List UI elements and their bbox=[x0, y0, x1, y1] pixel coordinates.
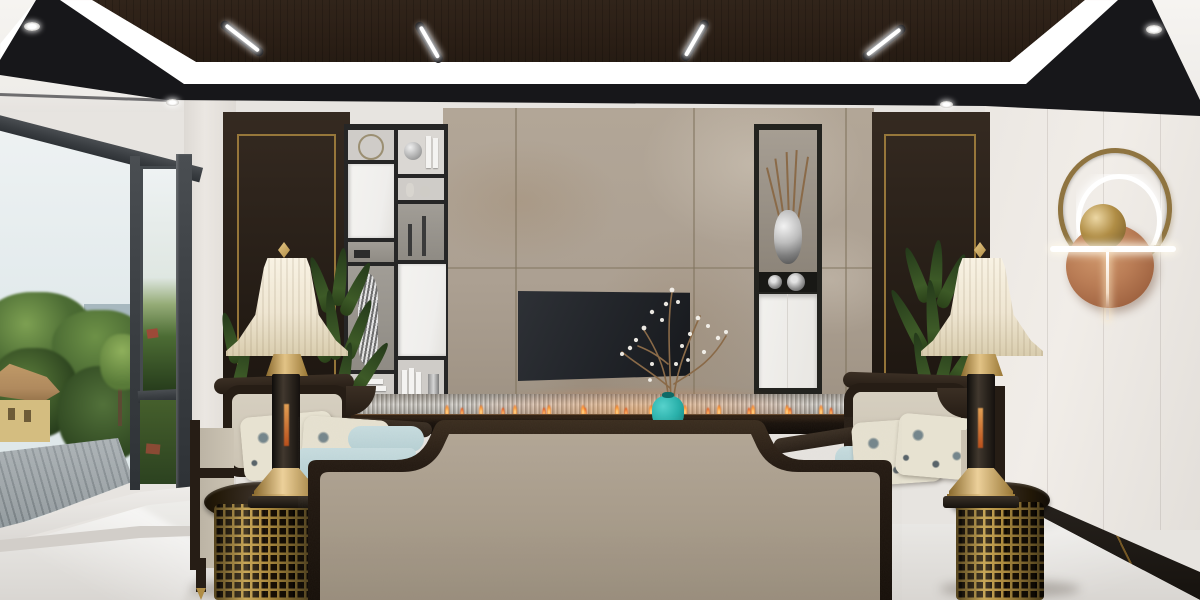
red-roof-bit bbox=[146, 443, 161, 454]
panel-seam bbox=[515, 108, 517, 420]
light-bar bbox=[1050, 246, 1176, 252]
dried-reed bbox=[797, 157, 809, 221]
light-line bbox=[1106, 252, 1109, 320]
red-roof-bit bbox=[146, 328, 158, 338]
living-room-render bbox=[0, 0, 1200, 600]
lamp-shade bbox=[921, 258, 1043, 356]
shelf-compartment bbox=[398, 130, 444, 174]
ring-wall-sconce bbox=[1050, 140, 1180, 330]
floor-to-ceiling-window bbox=[0, 96, 196, 566]
lamp-finial bbox=[278, 242, 290, 258]
window-glass bbox=[0, 96, 140, 536]
silver-ornament bbox=[404, 142, 422, 160]
rosette-sphere bbox=[768, 275, 782, 289]
books bbox=[426, 136, 431, 168]
display-niche bbox=[754, 124, 822, 402]
lamp-column bbox=[967, 374, 995, 470]
house-window bbox=[24, 410, 31, 422]
niche-back bbox=[759, 130, 817, 272]
recessed-downlight bbox=[1146, 25, 1162, 34]
candlestick bbox=[422, 216, 426, 256]
white-cabinet-door bbox=[348, 164, 394, 238]
white-cabinet-door bbox=[398, 264, 446, 356]
candlestick bbox=[408, 224, 412, 256]
chair-side-frame bbox=[190, 420, 200, 570]
flame-reflection bbox=[284, 404, 289, 446]
recessed-downlight bbox=[24, 22, 40, 31]
window-mullion bbox=[130, 156, 140, 490]
shelf-compartment bbox=[348, 130, 394, 160]
base-plinth bbox=[943, 496, 1019, 508]
sofa-fabric-panel bbox=[320, 434, 880, 600]
brass-neck bbox=[266, 354, 308, 376]
wire-sphere-decor bbox=[358, 134, 384, 160]
shelf-compartment bbox=[398, 204, 444, 260]
mercury-glass-vase bbox=[774, 210, 802, 264]
house-window bbox=[8, 408, 15, 420]
window-vent-lower bbox=[140, 400, 178, 484]
house-wall bbox=[0, 400, 50, 442]
mini-vase bbox=[420, 186, 430, 197]
gold-fretwork-drum bbox=[956, 502, 1044, 600]
dried-reed bbox=[792, 150, 798, 220]
sofa-back bbox=[298, 416, 902, 600]
rosette-sphere bbox=[787, 273, 805, 291]
shelf-compartment bbox=[398, 178, 444, 200]
brass-base bbox=[949, 468, 1013, 496]
niche-shelf bbox=[759, 272, 817, 292]
brass-sphere bbox=[1080, 204, 1126, 250]
lamp-column bbox=[272, 374, 300, 470]
lamp-shade bbox=[226, 258, 348, 356]
table-lamp-right bbox=[916, 240, 1048, 506]
mini-vase bbox=[406, 183, 414, 197]
flame-reflection bbox=[978, 408, 983, 448]
brass-neck bbox=[961, 354, 1003, 376]
books bbox=[433, 138, 438, 168]
lamp-finial bbox=[974, 242, 986, 258]
recessed-downlight bbox=[940, 101, 953, 108]
